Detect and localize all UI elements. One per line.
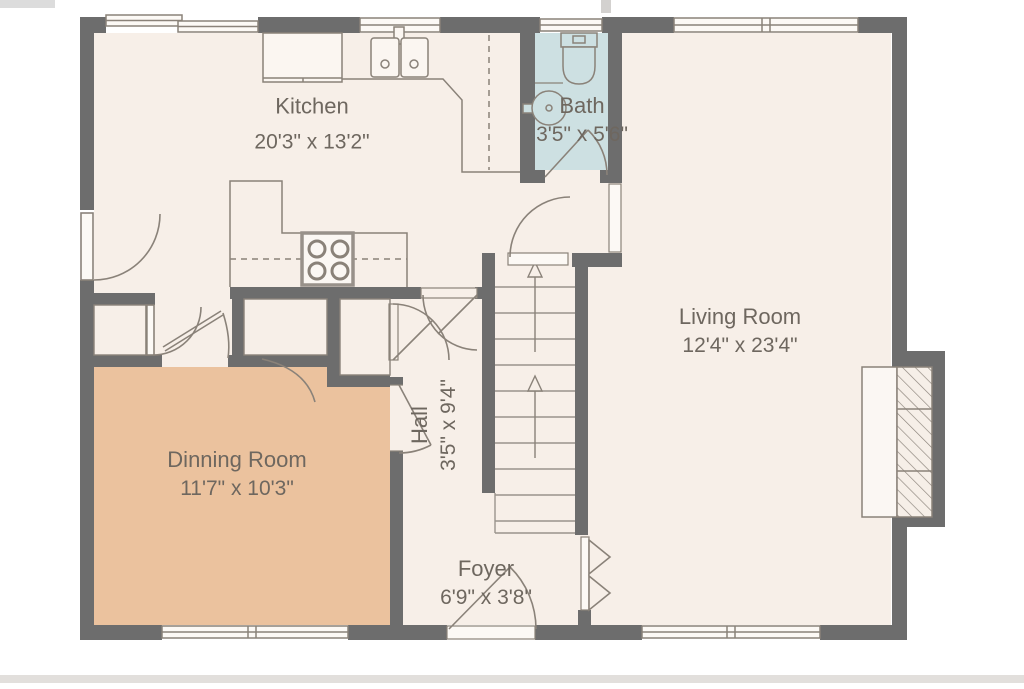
kitchen-window-left2 [178, 21, 258, 32]
living-room-bottom-window [642, 626, 820, 638]
fireplace-masonry [897, 367, 932, 517]
foyer-label: Foyer 6'9" x 3'8" [440, 557, 532, 609]
hall-label: Hall 3'5" x 9'4" [408, 379, 460, 471]
dining-room-label: Dinning Room 11'7" x 10'3" [167, 448, 306, 500]
room-dims: 12'4" x 23'4" [679, 335, 801, 357]
room-dims: 3'5" x 5'6" [536, 124, 628, 146]
living-room-label: Living Room 12'4" x 23'4" [679, 305, 801, 357]
room-dims: 11'7" x 10'3" [167, 478, 306, 500]
room-name: Hall [408, 379, 431, 471]
fireplace-hearth [862, 367, 897, 517]
bath-label: Bath 3'5" x 5'6" [536, 94, 628, 146]
dining-room-window [162, 626, 348, 638]
floor-plan: Kitchen 20'3" x 13'2" Bath 3'5" x 5'6" L… [0, 0, 1024, 689]
room-name: Foyer [440, 557, 532, 580]
stove-icon [302, 233, 353, 285]
bath-window [540, 19, 602, 31]
room-dims: 20'3" x 13'2" [254, 132, 369, 154]
room-name: Dinning Room [167, 448, 306, 471]
cased-opening [609, 184, 621, 252]
room-name: Bath [536, 94, 628, 117]
kitchen-label: Kitchen 20'3" x 13'2" [254, 94, 369, 153]
room-name: Kitchen [254, 94, 369, 117]
room-name: Living Room [679, 305, 801, 328]
fireplace [862, 367, 932, 517]
refrigerator-icon [263, 33, 342, 82]
room-dims: 6'9" x 3'8" [440, 587, 532, 609]
living-room-top-window [674, 18, 858, 32]
room-dims: 3'5" x 9'4" [438, 379, 460, 471]
kitchen-window-left [106, 15, 182, 26]
